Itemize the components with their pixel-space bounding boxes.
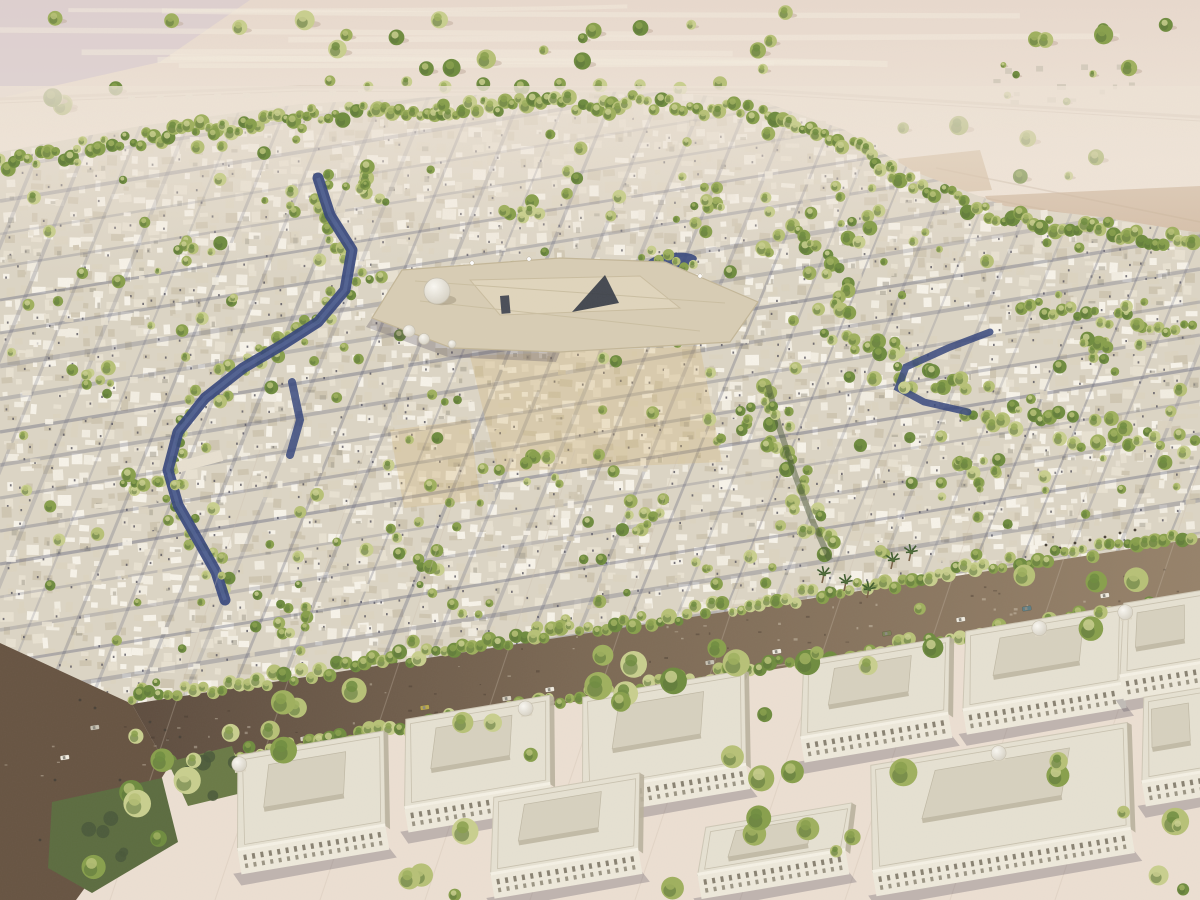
city-illustration-svg [0, 0, 1200, 900]
paper-grain-overlay [0, 0, 1200, 900]
aerial-city-rendering [0, 0, 1200, 900]
